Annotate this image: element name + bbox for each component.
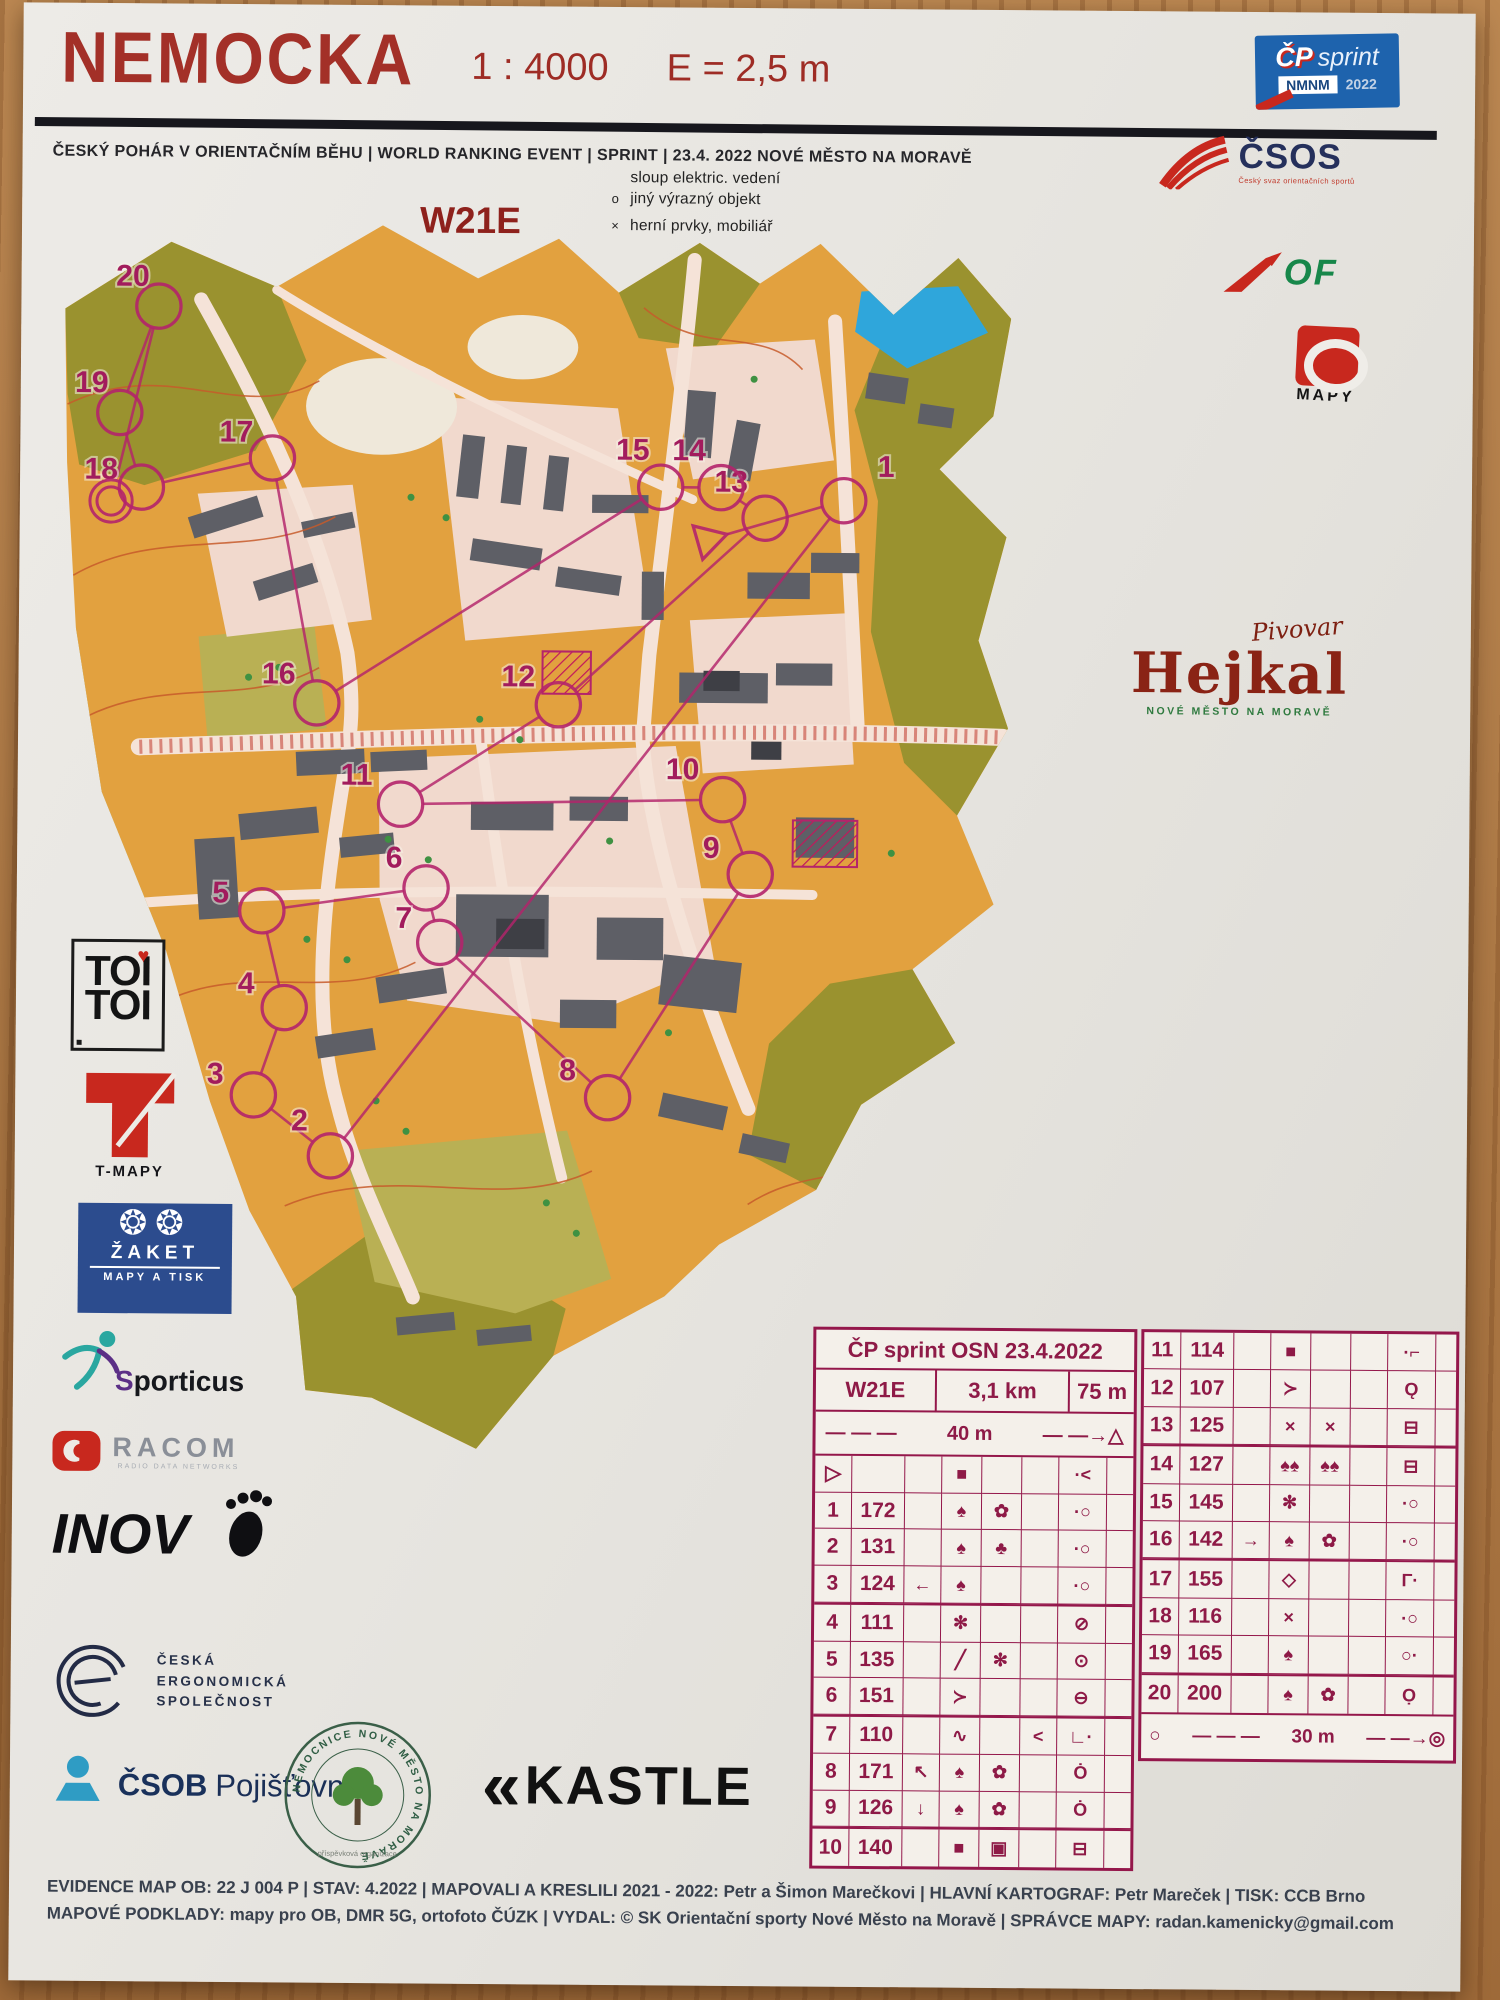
start-distance: 40 m (947, 1422, 993, 1445)
descriptions-class-row: W21E 3,1 km 75 m (816, 1370, 1134, 1414)
hospital-logo: NEMOCNICE NOVÉ MĚSTO NA MORAVĚ příspěvko… (281, 1718, 434, 1876)
control-number: 11 (340, 759, 372, 792)
description-cell: ♠ (1270, 1522, 1310, 1560)
description-cell: ·⌐ (1388, 1334, 1436, 1372)
description-cell (1105, 1756, 1131, 1793)
description-cell: 5 (814, 1641, 851, 1678)
description-row: 19165♠○· (1142, 1635, 1454, 1675)
description-cell (902, 1830, 939, 1867)
description-cell (980, 1718, 1020, 1755)
toitoi-line2: TOI (74, 987, 162, 1021)
description-row: 15145✻·○ (1143, 1484, 1455, 1524)
description-cell (1436, 1334, 1456, 1372)
description-row: 5135╱✻⊙ (814, 1641, 1132, 1680)
description-cell: 126 (849, 1790, 902, 1827)
sporticus-name: Sporticus (115, 1365, 244, 1398)
description-cell (1106, 1568, 1132, 1605)
control-descriptions-right: 11114■·⌐12107≻Ǫ13125××⊟14127♠♠♠♠⊟15145✻·… (1138, 1329, 1459, 1763)
description-cell: × (1269, 1599, 1309, 1637)
csob-name: ČSOB (118, 1767, 208, 1803)
description-cell (904, 1605, 941, 1642)
description-cell (1434, 1638, 1454, 1676)
description-row: 13125××⊟ (1143, 1407, 1455, 1447)
control-number: 20 (116, 260, 150, 293)
scale-row: 1 : 4000 E = 2,5 m (471, 46, 830, 92)
dash-decoration: — — — (1192, 1726, 1260, 1749)
hospital-ring-icon: NEMOCNICE NOVÉ MĚSTO NA MORAVĚ příspěvko… (281, 1718, 434, 1871)
description-cell: Ǫ (1388, 1371, 1436, 1409)
zaket-subtitle: MAPY A TISK (78, 1271, 232, 1284)
wood-table-background: NEMOCKA 1 : 4000 E = 2,5 m ČPsprint NMNM… (0, 0, 1500, 2000)
description-cell: 107 (1181, 1370, 1234, 1408)
description-cell (1433, 1677, 1453, 1715)
legend-label: sloup elektric. vedení (630, 169, 780, 188)
descriptions-title: ČP sprint OSN 23.4.2022 (816, 1330, 1134, 1372)
description-row: 4111✻⊘ (814, 1603, 1132, 1644)
description-cell: 2 (815, 1529, 852, 1566)
racom-icon (52, 1431, 102, 1473)
tmapy-logo: T-MAPY (63, 1073, 198, 1181)
racom-logo: RACOM RADIO DATA NETWORKS (52, 1431, 239, 1474)
description-cell: ♠ (939, 1791, 979, 1828)
map-sheet: NEMOCKA 1 : 4000 E = 2,5 m ČPsprint NMNM… (8, 2, 1475, 1991)
control-number: 3 (207, 1057, 224, 1090)
description-cell (1020, 1755, 1057, 1792)
zaket-name: ŽAKET (90, 1242, 220, 1269)
description-cell: 3 (814, 1566, 851, 1603)
description-cell: ▷ (815, 1456, 852, 1493)
control-number: 15 (616, 434, 650, 467)
description-cell: ♠♠ (1310, 1448, 1350, 1486)
event-badge: ČPsprint NMNM 2022 (1255, 33, 1400, 109)
description-row: 8171↖♠✿Ȯ (813, 1753, 1131, 1792)
control-number: 2 (291, 1104, 308, 1137)
description-cell: ✿ (979, 1792, 1019, 1829)
description-cell (1434, 1600, 1454, 1638)
description-cell (1234, 1333, 1271, 1371)
description-row: 7110∿<∟· (813, 1715, 1131, 1756)
description-cell: ○· (1386, 1637, 1434, 1675)
description-cell (1350, 1523, 1387, 1561)
description-cell (1232, 1599, 1269, 1637)
description-cell: 15 (1143, 1484, 1180, 1522)
description-cell (1233, 1484, 1270, 1522)
description-cell: 111 (851, 1605, 904, 1642)
description-cell: 11 (1144, 1332, 1181, 1370)
toitoi-logo: TOI TOI ♥ (71, 939, 166, 1052)
description-cell: 116 (1179, 1598, 1232, 1636)
description-cell (1105, 1719, 1131, 1756)
description-cell (1349, 1637, 1386, 1675)
map-title: NEMOCKA (61, 17, 415, 102)
description-row: 10140■▣⊟ (812, 1827, 1130, 1868)
description-cell (1019, 1831, 1056, 1868)
description-cell (1309, 1562, 1349, 1600)
description-row: 3124←♠·○ (814, 1566, 1132, 1605)
description-cell: ·○ (1059, 1494, 1107, 1531)
description-row: 20200♠✿Ọ (1141, 1673, 1453, 1715)
tmapy-t-icon (86, 1073, 175, 1158)
description-cell: ⊟ (1387, 1448, 1435, 1486)
description-cell (1309, 1637, 1349, 1675)
description-cell (903, 1679, 940, 1716)
control-number: 5 (212, 876, 229, 909)
description-cell: 165 (1179, 1636, 1232, 1674)
description-cell: ✿ (1310, 1523, 1350, 1561)
badge-cp: ČP (1275, 42, 1313, 73)
finish-circle-symbol: ○ (1149, 1725, 1161, 1747)
badge-year: 2022 (1346, 76, 1377, 93)
description-cell: 145 (1180, 1484, 1233, 1522)
control-descriptions-left: ČP sprint OSN 23.4.2022 W21E 3,1 km 75 m… (809, 1327, 1137, 1872)
heart-icon: ♥ (137, 945, 149, 968)
kastle-name: KASTLE (524, 1754, 752, 1818)
description-cell (905, 1493, 942, 1530)
description-cell: ·○ (1387, 1486, 1435, 1524)
description-cell (1348, 1676, 1385, 1714)
course-length: 3,1 km (937, 1371, 1071, 1412)
description-cell: ♠ (942, 1530, 982, 1567)
description-cell (1349, 1562, 1386, 1600)
description-cell: 124 (851, 1566, 904, 1603)
ergonomics-society-logo: ČESKÁ ERGONOMICKÁ SPOLEČNOST (44, 1633, 288, 1731)
iof-name: OF (1284, 251, 1338, 293)
description-cell (981, 1606, 1021, 1643)
zaket-logo: ❂❂ ŽAKET MAPY A TISK (77, 1203, 232, 1314)
description-cell (1309, 1599, 1349, 1637)
description-cell (1107, 1531, 1133, 1568)
legend-item: sloup elektric. vedení (600, 167, 780, 189)
description-cell: ✻ (981, 1643, 1021, 1680)
inov8-logo: INOV (52, 1501, 283, 1568)
sporticus-rest: porticus (134, 1365, 245, 1397)
description-cell: ♠ (942, 1493, 982, 1530)
description-cell: ■ (939, 1830, 979, 1867)
description-cell (904, 1642, 941, 1679)
descriptions-class: W21E (816, 1370, 937, 1411)
description-row: 6151≻⊖ (813, 1678, 1131, 1717)
description-cell (1349, 1600, 1386, 1638)
map-equidistance: E = 2,5 m (666, 47, 830, 91)
description-cell (1231, 1676, 1268, 1714)
description-cell (1106, 1644, 1132, 1681)
descriptions-rows-left: ▷■·<1172♠✿·○2131♠♣·○3124←♠·○4111✻⊘5135╱✻… (812, 1456, 1133, 1868)
description-cell: 18 (1142, 1598, 1179, 1636)
description-cell: 19 (1142, 1635, 1179, 1673)
description-cell (1436, 1372, 1456, 1410)
description-cell: ♠ (1269, 1636, 1309, 1674)
csob-icon (50, 1755, 108, 1803)
description-cell: ·○ (1387, 1523, 1435, 1561)
sporticus-initial: S (115, 1365, 134, 1396)
csos-tagline: Český svaz orientačních sportů (1238, 177, 1354, 185)
hejkal-brewery-logo: Pivovar Hejkal NOVÉ MĚSTO NA MORAVĚ (1110, 619, 1369, 719)
description-cell: 172 (852, 1493, 905, 1530)
description-cell: × (1270, 1408, 1310, 1446)
description-cell: ♠ (940, 1754, 980, 1791)
description-row: ▷■·< (815, 1456, 1133, 1495)
description-cell: 13 (1143, 1407, 1180, 1445)
description-row: 1172♠✿·○ (815, 1492, 1133, 1531)
description-cell: × (1310, 1408, 1350, 1446)
description-cell: 142 (1180, 1521, 1233, 1559)
description-cell: 12 (1144, 1370, 1181, 1408)
description-cell (1435, 1523, 1455, 1561)
description-cell: 155 (1179, 1561, 1232, 1599)
description-cell: 131 (852, 1529, 905, 1566)
description-cell: ✿ (982, 1494, 1022, 1531)
control-number: 14 (672, 434, 706, 467)
description-cell (982, 1457, 1022, 1494)
description-cell: ∿ (940, 1718, 980, 1755)
control-number: 9 (703, 832, 720, 865)
kastle-logo: « KASTLE (482, 1754, 753, 1818)
description-cell (1107, 1458, 1133, 1495)
racom-subtitle: RADIO DATA NETWORKS (112, 1463, 239, 1471)
description-cell: ≻ (940, 1679, 980, 1716)
description-row: 17155◇Γ· (1142, 1559, 1454, 1601)
description-cell: 17 (1142, 1561, 1179, 1599)
description-cell: ♠ (1268, 1676, 1308, 1714)
start-arrow-triangle: — —→△ (1043, 1422, 1124, 1448)
description-cell: ·○ (1058, 1568, 1106, 1605)
descriptions-rows-right: 11114■·⌐12107≻Ǫ13125××⊟14127♠♠♠♠⊟15145✻·… (1141, 1332, 1456, 1714)
description-cell (903, 1717, 940, 1754)
description-cell: ■ (942, 1457, 982, 1494)
control-number: 12 (501, 660, 535, 693)
finish-arrow-circle: — —→◎ (1366, 1726, 1445, 1750)
description-row: 12107≻Ǫ (1144, 1370, 1456, 1410)
badge-sprint: sprint (1318, 43, 1380, 72)
description-cell (1020, 1680, 1057, 1717)
description-cell: 4 (814, 1605, 851, 1642)
description-cell (1106, 1607, 1132, 1644)
description-cell (1232, 1636, 1269, 1674)
finish-distance: 30 m (1291, 1726, 1334, 1748)
description-row: 9126↓♠✿Ȯ (812, 1790, 1130, 1829)
description-cell: ↖ (903, 1754, 940, 1791)
description-cell: 151 (850, 1678, 903, 1715)
description-row: 18116×·○ (1142, 1598, 1454, 1638)
toitoi-dot-decoration (77, 1040, 82, 1045)
description-row: 14127♠♠♠♠⊟ (1143, 1444, 1455, 1486)
ergo-line1: ČESKÁ (157, 1650, 289, 1672)
description-cell (1019, 1792, 1056, 1829)
description-cell: ■ (1271, 1333, 1311, 1371)
csos-stripes-icon (1158, 133, 1230, 190)
description-cell: ⊙ (1058, 1643, 1106, 1680)
description-cell: ≻ (1271, 1371, 1311, 1409)
description-cell: Ọ (1385, 1677, 1433, 1715)
mapy-logo: MAPY (1285, 325, 1369, 408)
mapy-icon (1295, 325, 1360, 388)
description-cell: 1 (815, 1492, 852, 1529)
description-cell: 127 (1180, 1447, 1233, 1485)
description-cell: ⊘ (1058, 1606, 1106, 1643)
description-cell: ⊟ (1387, 1409, 1435, 1447)
description-cell (1022, 1457, 1059, 1494)
footer-credits-line2: MAPOVÉ PODKLADY: mapy pro OB, DMR 5G, or… (47, 1904, 1437, 1935)
map-scale: 1 : 4000 (471, 46, 609, 90)
forbidden-area-hatch (793, 820, 858, 867)
description-cell (1104, 1792, 1130, 1829)
description-cell: ·○ (1386, 1600, 1434, 1638)
csos-name: ČSOS (1238, 139, 1354, 175)
description-cell (1351, 1371, 1388, 1409)
description-cell: 10 (812, 1829, 849, 1866)
description-cell (1233, 1408, 1270, 1446)
start-distance-row: — — — 40 m — —→△ (815, 1412, 1133, 1458)
badge-bottom: NMNM 2022 (1255, 74, 1399, 94)
description-cell (905, 1456, 942, 1493)
description-cell (1351, 1334, 1388, 1372)
description-cell (1021, 1606, 1058, 1643)
description-cell: ↓ (902, 1791, 939, 1828)
description-cell: 171 (850, 1754, 903, 1791)
zaket-suns-icon: ❂❂ (78, 1205, 232, 1244)
iof-logo: OF (1222, 250, 1338, 295)
control-number: 7 (395, 902, 412, 935)
hejkal-subtitle: NOVÉ MĚSTO NA MORAVĚ (1110, 705, 1368, 719)
inov8-name: INOV (52, 1502, 189, 1566)
description-cell (1435, 1486, 1455, 1524)
description-cell: ∟· (1057, 1719, 1105, 1756)
description-row: 16142→♠✿·○ (1143, 1521, 1455, 1561)
forbidden-area-hatch (542, 651, 591, 694)
description-cell (1104, 1831, 1130, 1868)
description-cell (1021, 1643, 1058, 1680)
description-cell: Γ· (1386, 1563, 1434, 1601)
description-cell: ╱ (941, 1642, 981, 1679)
description-cell: ◇ (1269, 1562, 1309, 1600)
finish-distance-row: ○ — — — 30 m — —→◎ (1141, 1712, 1453, 1760)
description-cell: ·< (1059, 1458, 1107, 1495)
description-cell: → (1233, 1522, 1270, 1560)
description-cell: ♠♠ (1270, 1447, 1310, 1485)
description-cell: < (1020, 1718, 1057, 1755)
description-cell: ♣ (982, 1530, 1022, 1567)
description-cell: ·○ (1059, 1531, 1107, 1568)
description-cell: 14 (1143, 1446, 1180, 1484)
control-number: 17 (219, 415, 253, 448)
description-cell (1234, 1370, 1271, 1408)
description-cell (1435, 1449, 1455, 1487)
description-cell (980, 1679, 1020, 1716)
description-cell: 8 (813, 1753, 850, 1790)
course-climb: 75 m (1070, 1379, 1134, 1405)
ergo-line2: ERGONOMICKÁ (157, 1671, 289, 1693)
description-cell (1350, 1485, 1387, 1523)
description-cell (1310, 1485, 1350, 1523)
description-cell: Ȯ (1056, 1792, 1104, 1829)
ergo-line3: SPOLEČNOST (156, 1692, 288, 1714)
csos-logo: ČSOS Český svaz orientačních sportů (1158, 133, 1355, 191)
control-number: 6 (386, 841, 403, 874)
description-cell: 140 (849, 1829, 902, 1866)
description-cell: 20 (1141, 1675, 1178, 1713)
description-cell (1107, 1495, 1133, 1532)
description-cell (1435, 1409, 1455, 1447)
description-cell: Ȯ (1057, 1755, 1105, 1792)
description-cell (1232, 1561, 1269, 1599)
description-cell (1350, 1409, 1387, 1447)
control-number: 19 (75, 366, 109, 399)
description-cell: 135 (851, 1642, 904, 1679)
control-number: 4 (238, 967, 255, 1000)
description-cell: ▣ (979, 1830, 1019, 1867)
hospital-subtext: příspěvková organizace (318, 1849, 397, 1859)
description-cell (1311, 1333, 1351, 1371)
description-cell: ⊟ (1056, 1831, 1104, 1868)
dash-decoration: — — — (825, 1421, 896, 1445)
tmapy-name: T-MAPY (63, 1163, 197, 1181)
badge-top: ČPsprint (1255, 40, 1399, 73)
description-cell (852, 1456, 905, 1493)
event-info-line: ČESKÝ POHÁR V ORIENTAČNÍM BĚHU | WORLD R… (53, 143, 913, 168)
sporticus-logo: Sporticus (51, 1325, 245, 1405)
double-chevron-icon: « (482, 1757, 521, 1813)
description-cell (1350, 1448, 1387, 1486)
control-number: 16 (262, 657, 296, 690)
description-cell (905, 1530, 942, 1567)
description-cell (1022, 1531, 1059, 1568)
description-cell (1311, 1371, 1351, 1409)
description-cell: 114 (1181, 1332, 1234, 1370)
description-cell: 6 (813, 1678, 850, 1715)
description-cell: ♠ (941, 1567, 981, 1604)
description-cell: 200 (1178, 1675, 1231, 1713)
footer-credits-line1: EVIDENCE MAP OB: 22 J 004 P | STAV: 4.20… (47, 1877, 1437, 1908)
description-row: 11114■·⌐ (1144, 1332, 1456, 1372)
ergo-spiral-icon (44, 1633, 141, 1730)
description-cell (1105, 1680, 1131, 1717)
description-cell: 7 (813, 1717, 850, 1754)
control-number: 8 (559, 1054, 576, 1087)
control-number: 1 (878, 451, 895, 484)
description-cell: ← (904, 1566, 941, 1603)
footprint-icon (218, 1486, 275, 1562)
description-cell (1233, 1447, 1270, 1485)
description-cell: ✿ (1308, 1676, 1348, 1714)
control-number: 10 (666, 753, 700, 786)
description-cell (1021, 1567, 1058, 1604)
description-cell (1022, 1494, 1059, 1531)
description-cell: 9 (812, 1790, 849, 1827)
description-cell: ✿ (980, 1755, 1020, 1792)
description-cell (1434, 1563, 1454, 1601)
description-cell: 110 (850, 1717, 903, 1754)
description-cell: ⊖ (1057, 1680, 1105, 1717)
iof-swoosh-icon (1222, 250, 1284, 294)
description-cell: ✻ (941, 1606, 981, 1643)
description-cell (981, 1567, 1021, 1604)
racom-name: RACOM (112, 1434, 239, 1462)
description-cell: 125 (1180, 1407, 1233, 1445)
description-row: 2131♠♣·○ (815, 1529, 1133, 1568)
description-cell: 16 (1143, 1521, 1180, 1559)
description-cell: ✻ (1270, 1485, 1310, 1523)
